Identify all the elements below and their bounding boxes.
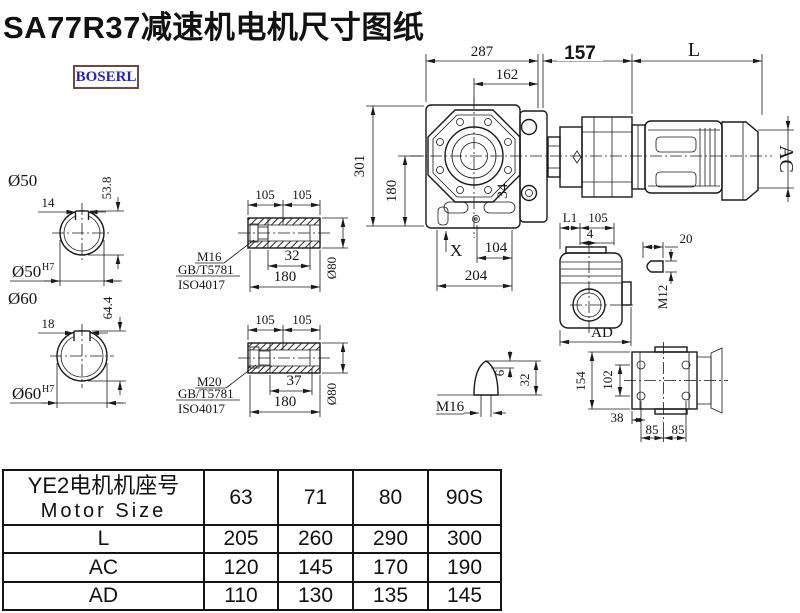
size-col-80: 80 [353, 470, 428, 525]
dim-105c: 105 [255, 312, 275, 327]
dim-32: 32 [285, 248, 300, 264]
table-row-AD: AD 110 130 135 145 [3, 582, 501, 610]
dim-14: 14 [42, 195, 56, 210]
label-d50: Ø50 [8, 171, 37, 190]
motor-size-table: YE2电机机座号 Motor Size 63 71 80 90S L 205 2… [2, 469, 502, 611]
label-d50h7-sup: H7 [42, 262, 54, 273]
dim-38: 38 [611, 410, 624, 425]
header-en: Motor Size [4, 499, 203, 523]
dim-105a: 105 [255, 187, 275, 202]
dim-287: 287 [471, 44, 494, 60]
shaft-section-60: Ø60 18 64.4 Ø60 H7 [8, 289, 126, 408]
motor [632, 121, 758, 200]
dim-32-plug: 32 [517, 374, 532, 387]
size-col-90s: 90S [428, 470, 501, 525]
size-col-71: 71 [278, 470, 353, 525]
dims-left: 301 180 [352, 106, 424, 226]
cell-L-71: 260 [278, 525, 353, 553]
label-iso-u: ISO4017 [178, 277, 225, 292]
header-motor-size: YE2电机机座号 Motor Size [3, 470, 204, 525]
dim-104: 104 [485, 240, 508, 256]
dim-162: 162 [496, 67, 519, 83]
dim-ac: AC [758, 116, 797, 202]
dim-d80u: Ø80 [324, 257, 339, 279]
dim-180: 180 [384, 180, 400, 203]
label-gbt-l: GB/T5781 [178, 386, 234, 401]
row-label-AC: AC [3, 553, 204, 582]
label-d60: Ø60 [8, 289, 37, 308]
hollow-shaft-upper: 105 105 32 180 Ø80 M16 GB/T5781 ISO4017 [176, 187, 348, 292]
dim-18: 18 [42, 316, 55, 331]
dims-top: 287 157 L 162 [426, 39, 762, 115]
cell-AD-63: 110 [204, 582, 278, 610]
size-col-63: 63 [204, 470, 278, 525]
key-detail: 20 M12 [643, 231, 693, 309]
header-cn: YE2电机机座号 [4, 473, 203, 499]
cell-AD-71: 130 [278, 582, 353, 610]
label-X: X [450, 241, 462, 260]
cell-AC-90s: 190 [428, 553, 501, 582]
label-d60h7: Ø60 [12, 384, 41, 403]
dim-34: 34 [495, 183, 511, 199]
dim-105d: 105 [292, 312, 312, 327]
dim-6: 6 [492, 369, 507, 376]
adapter [548, 117, 632, 197]
dim-105b: 105 [292, 187, 312, 202]
row-label-AD: AD [3, 582, 204, 610]
dim-64.4: 64.4 [100, 296, 115, 319]
cell-AD-80: 135 [353, 582, 428, 610]
dim-102: 102 [600, 370, 615, 390]
dim-20: 20 [680, 231, 693, 246]
side-view: L1 105 4 AD [560, 210, 633, 346]
cell-AC-71: 145 [278, 553, 353, 582]
dim-85a: 85 [646, 422, 659, 437]
dim-204: 204 [465, 268, 488, 284]
table-row-AC: AC 120 145 170 190 [3, 553, 501, 582]
label-d60h7-sup: H7 [42, 384, 54, 395]
dim-157: 157 [564, 43, 596, 64]
shaft-section-50: Ø50 14 53.8 Ø50 H7 [8, 171, 124, 286]
cell-AD-90s: 145 [428, 582, 501, 610]
label-d50h7: Ø50 [12, 262, 41, 281]
label-gbt-u: GB/T5781 [178, 262, 234, 277]
dim-AC: AC [775, 145, 797, 173]
technical-drawing: 287 157 L 162 301 180 X 104 204 34 [0, 0, 800, 466]
dim-301: 301 [352, 155, 368, 178]
dim-180l: 180 [274, 394, 297, 410]
dim-53.8: 53.8 [99, 177, 114, 200]
hollow-shaft-lower: 105 105 37 180 Ø80 M20 GB/T5781 ISO4017 [176, 312, 348, 417]
cell-L-63: 205 [204, 525, 278, 553]
dim-L: L [688, 39, 700, 61]
dim-L1: L1 [563, 210, 577, 225]
dim-37: 37 [287, 373, 303, 389]
label-m12: M12 [655, 285, 670, 310]
dim-180u: 180 [274, 269, 297, 285]
table-header-row: YE2电机机座号 Motor Size 63 71 80 90S [3, 470, 501, 525]
cell-L-90s: 300 [428, 525, 501, 553]
rear-view: 154 102 38 85 85 [573, 342, 728, 442]
dim-d80l: Ø80 [324, 383, 339, 405]
label-m16-plug: M16 [436, 399, 465, 415]
cell-L-80: 290 [353, 525, 428, 553]
plug-detail: 6 32 M16 [436, 351, 542, 417]
dim-105-side: 105 [588, 210, 608, 225]
label-iso-l: ISO4017 [178, 401, 225, 416]
dim-4: 4 [587, 226, 594, 241]
dim-154: 154 [573, 371, 588, 391]
dim-85b: 85 [672, 422, 685, 437]
dims-bottom: X 104 204 34 [437, 183, 512, 291]
cell-AC-80: 170 [353, 553, 428, 582]
dim-AD: AD [591, 325, 613, 341]
row-label-L: L [3, 525, 204, 553]
table-row-L: L 205 260 290 300 [3, 525, 501, 553]
cell-AC-63: 120 [204, 553, 278, 582]
vent-plug [438, 207, 448, 225]
